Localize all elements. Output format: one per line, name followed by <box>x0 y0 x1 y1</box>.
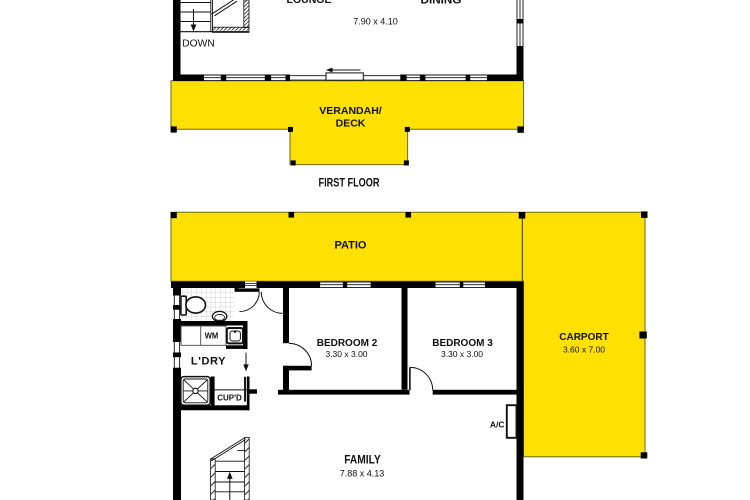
svg-text:3.30 x 3.00: 3.30 x 3.00 <box>441 349 483 359</box>
svg-text:VERANDAH/: VERANDAH/ <box>319 105 382 117</box>
svg-text:3.60 x 7.00: 3.60 x 7.00 <box>563 345 605 355</box>
svg-text:7.90 x 4.10: 7.90 x 4.10 <box>353 17 398 27</box>
svg-text:CARPORT: CARPORT <box>559 332 608 343</box>
svg-text:A/C: A/C <box>490 420 505 430</box>
svg-text:7.88 x 4.13: 7.88 x 4.13 <box>340 469 385 479</box>
svg-text:DECK: DECK <box>336 117 366 129</box>
svg-text:L'DRY: L'DRY <box>191 356 226 368</box>
svg-text:LOUNGE: LOUNGE <box>287 0 332 6</box>
svg-text:FAMILY: FAMILY <box>344 454 381 466</box>
svg-text:FIRST FLOOR: FIRST FLOOR <box>319 175 380 189</box>
svg-text:DOWN: DOWN <box>182 39 215 50</box>
svg-text:CUP'D: CUP'D <box>217 394 242 403</box>
svg-text:BEDROOM 2: BEDROOM 2 <box>317 338 378 349</box>
svg-text:DINING: DINING <box>421 0 462 7</box>
svg-text:PATIO: PATIO <box>335 239 367 251</box>
svg-text:WM: WM <box>205 331 219 341</box>
svg-text:3.30 x 3.00: 3.30 x 3.00 <box>325 349 367 359</box>
svg-text:BEDROOM 3: BEDROOM 3 <box>432 338 493 349</box>
